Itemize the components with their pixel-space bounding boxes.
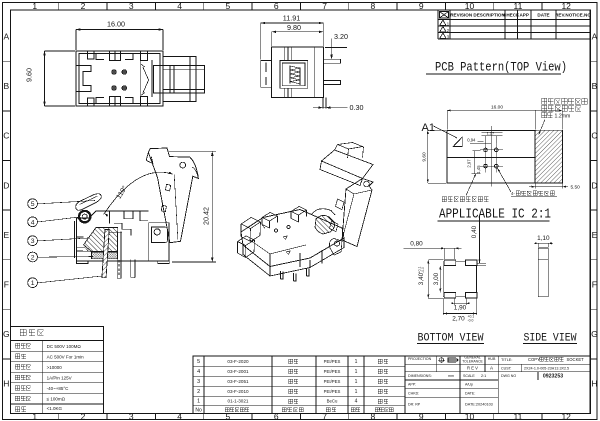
svg-text:-40~+85°C: -40~+85°C <box>47 386 70 391</box>
svg-text:0923253: 0923253 <box>543 374 563 380</box>
svg-text:3.20: 3.20 <box>334 32 348 41</box>
svg-text:D: D <box>591 180 597 190</box>
svg-text:2,70: 2,70 <box>452 315 465 322</box>
svg-text:<1.0KG: <1.0KG <box>47 406 63 411</box>
svg-text:CHECK: CHECK <box>503 12 520 17</box>
svg-text:REVISION DESCRIPTION: REVISION DESCRIPTION <box>450 12 505 17</box>
svg-text:≤ 100mΩ: ≤ 100mΩ <box>47 397 66 402</box>
svg-text:0,80: 0,80 <box>410 240 423 247</box>
svg-text:CUST:: CUST: <box>501 366 512 370</box>
svg-text:10: 10 <box>465 411 475 421</box>
svg-text:C: C <box>3 131 9 141</box>
svg-text:03-F-2001: 03-F-2001 <box>227 369 249 374</box>
svg-text:DIMENSIONS:: DIMENSIONS: <box>408 374 432 378</box>
svg-text:F: F <box>4 280 9 290</box>
svg-text:A: A <box>592 32 598 42</box>
svg-text:HUB: HUB <box>488 357 496 361</box>
svg-text:DATE:: DATE: <box>465 391 475 395</box>
svg-text:4: 4 <box>177 1 182 11</box>
svg-text:1A/Pin 125V: 1A/Pin 125V <box>47 376 72 381</box>
svg-text:7: 7 <box>322 411 327 421</box>
svg-text:1,10: 1,10 <box>537 235 550 242</box>
svg-text:G: G <box>591 329 598 339</box>
svg-text:1: 1 <box>355 389 358 395</box>
svg-text:SOCKET: SOCKET <box>567 357 585 362</box>
svg-text:mm: mm <box>448 374 454 378</box>
svg-text:1.2mm: 1.2mm <box>555 113 571 119</box>
svg-text:0,94: 0,94 <box>467 138 476 143</box>
svg-text:8: 8 <box>371 1 376 11</box>
svg-text:DR: RP: DR: RP <box>408 402 421 406</box>
svg-text:E: E <box>3 230 9 240</box>
svg-text:2:1: 2:1 <box>481 374 486 378</box>
svg-text:PEI/PES: PEI/PES <box>324 359 341 364</box>
svg-text:2: 2 <box>81 411 86 421</box>
svg-text:03-F-2010: 03-F-2010 <box>227 389 249 394</box>
svg-text:R E V: R E V <box>467 366 478 371</box>
svg-text:01-1-3021: 01-1-3021 <box>228 399 249 404</box>
svg-text:REV.NOTICE.NO: REV.NOTICE.NO <box>555 12 591 17</box>
svg-text:0.30: 0.30 <box>350 103 364 112</box>
svg-text:TITLE:: TITLE: <box>501 358 512 362</box>
svg-text:APP:: APP: <box>408 383 416 387</box>
svg-text:CHKD:: CHKD: <box>408 391 419 395</box>
svg-text:3: 3 <box>129 411 134 421</box>
svg-text:4: 4 <box>197 369 200 375</box>
svg-text:PEI/PES: PEI/PES <box>324 389 341 394</box>
svg-text:APP: APP <box>519 12 528 17</box>
svg-text:1,90: 1,90 <box>454 305 467 312</box>
svg-text:03-F-2051: 03-F-2051 <box>227 379 249 384</box>
svg-text:16.00: 16.00 <box>107 20 125 29</box>
svg-text:10: 10 <box>465 1 475 11</box>
svg-text:16.00: 16.00 <box>491 105 503 111</box>
svg-text:8: 8 <box>371 411 376 421</box>
svg-text:A: A <box>3 32 9 42</box>
svg-text:2: 2 <box>197 389 200 395</box>
svg-text:3,00: 3,00 <box>433 272 440 285</box>
svg-text:1: 1 <box>197 399 200 405</box>
svg-text:-0.0: -0.0 <box>468 318 474 322</box>
svg-text:G: G <box>3 329 10 339</box>
svg-text:11: 11 <box>513 1 522 11</box>
svg-text:SCALE: SCALE <box>463 374 475 378</box>
svg-text:2X24-1.0-005-23H13.3X2.5: 2X24-1.0-005-23H13.3X2.5 <box>524 366 569 370</box>
svg-text:PEI/PES: PEI/PES <box>324 379 341 384</box>
svg-text:0,40: 0,40 <box>471 225 478 238</box>
svg-text:4: 4 <box>177 411 182 421</box>
svg-text:5: 5 <box>226 411 231 421</box>
svg-text:5.50: 5.50 <box>571 184 581 190</box>
svg-text:DATE: DATE <box>537 12 549 17</box>
svg-text:DWG NO: DWG NO <box>501 374 516 378</box>
svg-text:B: B <box>592 81 598 91</box>
svg-text:1: 1 <box>32 1 37 11</box>
svg-text:4-: 4- <box>511 191 515 196</box>
svg-text:3: 3 <box>129 1 134 11</box>
svg-text:6: 6 <box>274 1 279 11</box>
svg-text:E: E <box>592 230 598 240</box>
svg-text:BOTTOM VIEW: BOTTOM VIEW <box>418 333 484 345</box>
svg-text:2,97: 2,97 <box>467 159 472 168</box>
svg-text:F: F <box>592 280 597 290</box>
svg-text:03-F-2020: 03-F-2020 <box>227 359 249 364</box>
svg-text:5: 5 <box>226 1 231 11</box>
svg-text:1: 1 <box>355 369 358 375</box>
svg-text:>10000: >10000 <box>47 365 63 370</box>
svg-text:AC 500V For 1min: AC 500V For 1min <box>47 354 85 359</box>
svg-text:No: No <box>195 407 202 413</box>
svg-text:11.91: 11.91 <box>283 14 300 23</box>
svg-text:5: 5 <box>31 201 35 208</box>
svg-text:BeCu: BeCu <box>327 399 338 404</box>
svg-text:2: 2 <box>31 255 35 262</box>
svg-text:3: 3 <box>197 379 200 385</box>
svg-text:4: 4 <box>355 399 358 405</box>
svg-text:12: 12 <box>561 411 571 421</box>
svg-text:1: 1 <box>31 280 35 287</box>
svg-text:6: 6 <box>274 411 279 421</box>
svg-text:9.80: 9.80 <box>287 23 301 32</box>
svg-text:9: 9 <box>419 411 424 421</box>
svg-text:1: 1 <box>355 359 358 365</box>
svg-text:TOLERANCE: TOLERANCE <box>462 359 483 363</box>
svg-text:H: H <box>591 379 597 389</box>
svg-text:11: 11 <box>513 411 522 421</box>
svg-text:4: 4 <box>31 219 35 226</box>
svg-text:DC 500V 100MΩ: DC 500V 100MΩ <box>47 344 82 349</box>
svg-text:SIDE VIEW: SIDE VIEW <box>524 333 577 345</box>
svg-text:1: 1 <box>355 379 358 385</box>
svg-text:9,60: 9,60 <box>422 152 428 162</box>
svg-text:20.42: 20.42 <box>202 207 211 225</box>
svg-text:D: D <box>3 180 9 190</box>
svg-text:PCB Pattern(TOP View): PCB Pattern(TOP View) <box>435 60 567 75</box>
svg-text:PROJECTION: PROJECTION <box>408 357 432 361</box>
svg-text:APPLICABLE IC 2:1: APPLICABLE IC 2:1 <box>439 207 551 223</box>
svg-text:C: C <box>591 131 597 141</box>
svg-text:12: 12 <box>561 1 571 11</box>
svg-text:DATE:20240103: DATE:20240103 <box>465 402 493 406</box>
svg-text:PEI/PES: PEI/PES <box>324 369 341 374</box>
svg-text:1: 1 <box>32 411 37 421</box>
svg-text:H: H <box>3 379 9 389</box>
svg-text:9: 9 <box>419 1 424 11</box>
svg-text:2: 2 <box>81 1 86 11</box>
svg-text:7: 7 <box>322 1 327 11</box>
svg-text:A/Up: A/Up <box>465 383 473 387</box>
svg-text:-0.0: -0.0 <box>421 267 425 273</box>
svg-text:3: 3 <box>31 238 35 245</box>
svg-text:B: B <box>3 81 9 91</box>
svg-text:COPY: COPY <box>528 357 540 362</box>
svg-text:9.60: 9.60 <box>25 68 34 82</box>
svg-text:5: 5 <box>197 359 200 365</box>
